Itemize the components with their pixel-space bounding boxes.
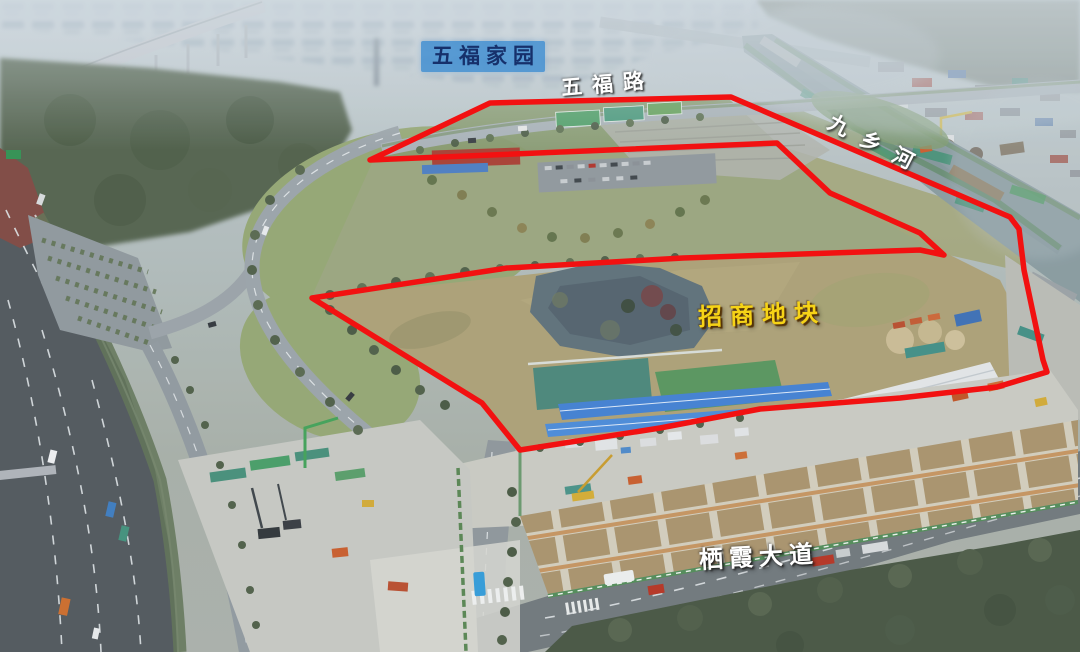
aerial-photo-canvas [0, 0, 1080, 652]
label-zhaoshang-plot: 招商地块 [698, 301, 827, 329]
label-qixia-avenue: 栖霞大道 [698, 542, 819, 572]
aerial-photo: 五福家园 五福路 九乡河 招商地块 栖霞大道 [0, 0, 1080, 652]
haze [0, 0, 1080, 652]
label-wufu-estate: 五福家园 [421, 41, 545, 72]
